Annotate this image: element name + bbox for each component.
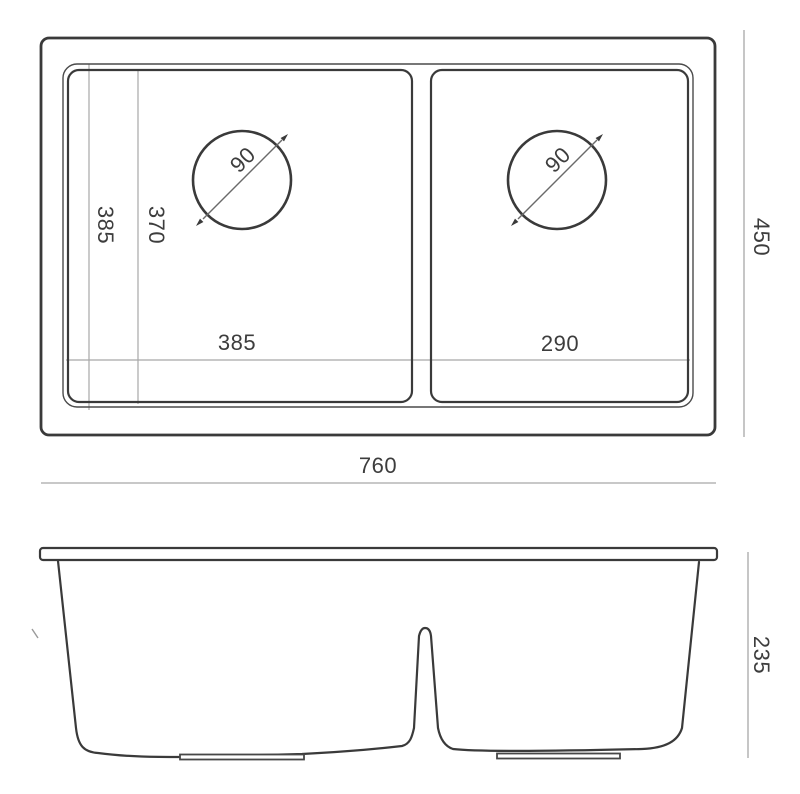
side-view: 235: [32, 548, 774, 760]
side-rim-outline: [40, 548, 717, 560]
overall-width-label: 760: [359, 453, 397, 478]
left-bowl-width-label: 385: [218, 330, 256, 355]
top-view: 90 90 385 370 385 290 450 760: [41, 30, 774, 483]
right-bowl-width-label: 290: [541, 331, 579, 356]
right-foot-pad: [497, 754, 620, 759]
overall-depth-label: 450: [749, 218, 774, 256]
left-foot-pad: [180, 755, 304, 760]
outer-edge-outline: [41, 38, 715, 435]
bowl-depth-label: 370: [144, 206, 169, 244]
side-tub-profile: [58, 561, 699, 757]
left-tick-mark: [32, 629, 38, 638]
technical-drawing: 90 90 385 370 385 290 450 760: [0, 0, 800, 794]
rim-depth-label: 385: [93, 206, 118, 244]
drawing-svg: 90 90 385 370 385 290 450 760: [0, 0, 800, 794]
overall-height-label: 235: [749, 636, 774, 674]
